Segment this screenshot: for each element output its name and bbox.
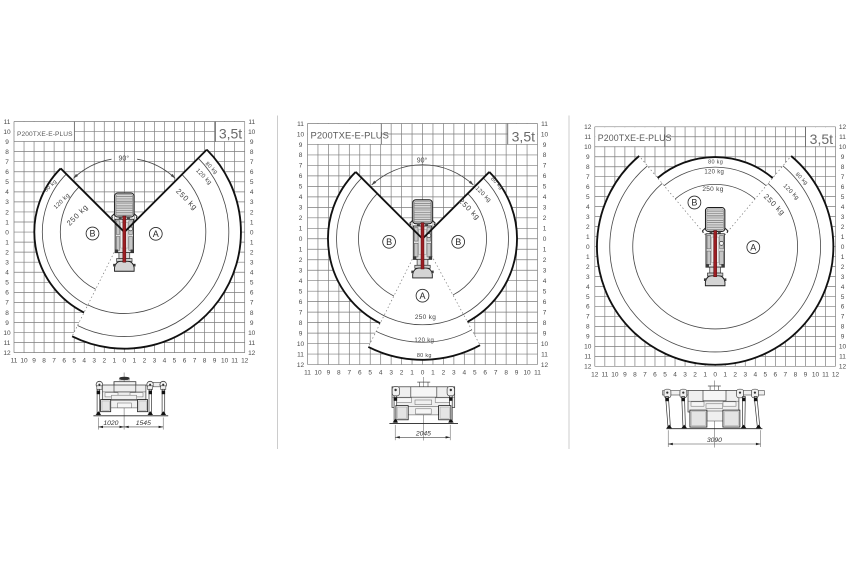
svg-text:10: 10: [248, 330, 256, 337]
svg-text:90°: 90°: [119, 154, 130, 162]
svg-text:11: 11: [541, 351, 548, 358]
svg-text:3: 3: [683, 371, 687, 378]
svg-text:2: 2: [543, 257, 547, 264]
svg-text:10: 10: [541, 131, 549, 138]
svg-text:2: 2: [299, 215, 303, 222]
svg-text:7: 7: [250, 300, 254, 307]
svg-text:4: 4: [841, 204, 845, 211]
svg-text:3: 3: [5, 199, 9, 206]
svg-text:10: 10: [20, 358, 28, 365]
svg-text:12: 12: [839, 364, 847, 371]
svg-text:9: 9: [841, 154, 845, 161]
svg-text:11: 11: [541, 121, 548, 128]
svg-text:1: 1: [299, 247, 303, 254]
svg-text:B: B: [386, 237, 392, 247]
svg-text:8: 8: [250, 149, 254, 156]
svg-text:4: 4: [163, 358, 167, 365]
svg-text:2: 2: [841, 264, 845, 271]
svg-text:3: 3: [250, 260, 254, 267]
svg-text:7: 7: [784, 371, 788, 378]
svg-text:6: 6: [543, 299, 547, 306]
svg-text:10: 10: [812, 371, 820, 378]
svg-text:7: 7: [841, 174, 845, 181]
svg-text:9: 9: [5, 139, 9, 146]
svg-text:5: 5: [841, 194, 845, 201]
svg-text:2: 2: [250, 209, 254, 216]
svg-text:3: 3: [543, 268, 547, 275]
svg-text:10: 10: [611, 371, 619, 378]
svg-text:1: 1: [723, 371, 727, 378]
svg-text:1: 1: [410, 370, 414, 377]
svg-text:3: 3: [841, 274, 845, 281]
svg-text:11: 11: [248, 119, 255, 126]
svg-text:1: 1: [586, 234, 590, 241]
svg-text:7: 7: [643, 371, 647, 378]
svg-text:11: 11: [297, 351, 304, 358]
svg-text:3: 3: [543, 205, 547, 212]
svg-text:2: 2: [250, 249, 254, 256]
svg-text:3: 3: [841, 214, 845, 221]
svg-text:2: 2: [400, 370, 404, 377]
svg-text:11: 11: [534, 370, 541, 377]
svg-text:8: 8: [794, 371, 798, 378]
svg-text:8: 8: [203, 358, 207, 365]
svg-text:2: 2: [143, 358, 147, 365]
svg-text:9: 9: [250, 320, 254, 327]
svg-text:P200TXE-E-PLUS: P200TXE-E-PLUS: [17, 131, 73, 138]
svg-text:2: 2: [102, 358, 106, 365]
svg-text:9: 9: [804, 371, 808, 378]
svg-text:5: 5: [473, 370, 477, 377]
svg-text:8: 8: [586, 164, 590, 171]
svg-text:5: 5: [5, 179, 9, 186]
svg-text:10: 10: [3, 129, 11, 136]
svg-text:0: 0: [250, 229, 254, 236]
svg-text:7: 7: [348, 370, 352, 377]
svg-text:3: 3: [299, 268, 303, 275]
svg-text:6: 6: [586, 184, 590, 191]
svg-text:12: 12: [591, 371, 599, 378]
svg-text:4: 4: [5, 270, 9, 277]
svg-text:3: 3: [153, 358, 157, 365]
svg-text:1: 1: [5, 219, 9, 226]
svg-text:4: 4: [753, 371, 757, 378]
svg-text:8: 8: [250, 310, 254, 317]
svg-text:8: 8: [337, 370, 341, 377]
svg-text:P200TXE-E-PLUS: P200TXE-E-PLUS: [598, 133, 672, 143]
svg-text:11: 11: [297, 121, 304, 128]
svg-text:5: 5: [543, 288, 547, 295]
svg-text:12: 12: [241, 358, 249, 365]
svg-text:4: 4: [250, 189, 254, 196]
svg-text:12: 12: [541, 362, 549, 369]
svg-text:11: 11: [584, 354, 591, 361]
svg-text:10: 10: [221, 358, 229, 365]
svg-text:3: 3: [743, 371, 747, 378]
svg-text:5: 5: [663, 371, 667, 378]
svg-text:12: 12: [3, 350, 11, 357]
svg-text:12: 12: [248, 350, 256, 357]
svg-text:6: 6: [250, 290, 254, 297]
svg-text:7: 7: [193, 358, 197, 365]
svg-text:0: 0: [841, 244, 845, 251]
svg-text:8: 8: [5, 149, 9, 156]
svg-text:6: 6: [543, 173, 547, 180]
svg-text:10: 10: [584, 144, 592, 151]
svg-text:80 kg: 80 kg: [708, 159, 723, 165]
svg-text:6: 6: [841, 184, 845, 191]
svg-text:4: 4: [543, 278, 547, 285]
svg-text:10: 10: [3, 330, 11, 337]
svg-text:8: 8: [299, 320, 303, 327]
svg-text:2: 2: [5, 249, 9, 256]
svg-text:2: 2: [841, 224, 845, 231]
svg-text:6: 6: [299, 299, 303, 306]
svg-text:4: 4: [82, 358, 86, 365]
svg-text:2: 2: [693, 371, 697, 378]
svg-text:7: 7: [586, 174, 590, 181]
svg-text:3: 3: [586, 274, 590, 281]
svg-text:2: 2: [543, 215, 547, 222]
svg-text:4: 4: [379, 370, 383, 377]
svg-text:9: 9: [543, 142, 547, 149]
svg-text:80 kg: 80 kg: [417, 353, 432, 359]
svg-text:11: 11: [4, 340, 11, 347]
svg-text:250 kg: 250 kg: [415, 314, 436, 321]
svg-text:5: 5: [543, 184, 547, 191]
svg-text:1: 1: [586, 254, 590, 261]
svg-text:0: 0: [5, 229, 9, 236]
svg-text:11: 11: [231, 358, 238, 365]
svg-text:12: 12: [297, 362, 305, 369]
svg-text:11: 11: [4, 119, 11, 126]
svg-text:6: 6: [62, 358, 66, 365]
svg-text:8: 8: [299, 152, 303, 159]
svg-text:B: B: [455, 237, 461, 247]
svg-text:9: 9: [841, 334, 845, 341]
svg-text:9: 9: [299, 142, 303, 149]
svg-text:8: 8: [42, 358, 46, 365]
svg-text:6: 6: [483, 370, 487, 377]
svg-text:7: 7: [5, 300, 9, 307]
svg-text:12: 12: [839, 124, 847, 131]
svg-text:4: 4: [5, 189, 9, 196]
svg-text:3: 3: [389, 370, 393, 377]
svg-text:0: 0: [421, 370, 425, 377]
svg-text:10: 10: [523, 370, 531, 377]
svg-text:2: 2: [586, 224, 590, 231]
svg-text:7: 7: [494, 370, 498, 377]
svg-text:5: 5: [299, 184, 303, 191]
svg-text:4: 4: [299, 278, 303, 285]
svg-text:8: 8: [543, 320, 547, 327]
svg-text:9: 9: [213, 358, 217, 365]
svg-text:A: A: [750, 242, 756, 252]
svg-text:2: 2: [733, 371, 737, 378]
svg-text:1: 1: [112, 358, 116, 365]
svg-text:11: 11: [822, 371, 829, 378]
svg-text:1: 1: [703, 371, 707, 378]
svg-text:8: 8: [841, 324, 845, 331]
svg-text:3: 3: [452, 370, 456, 377]
svg-text:5: 5: [250, 280, 254, 287]
svg-text:B: B: [691, 198, 697, 208]
svg-text:6: 6: [653, 371, 657, 378]
svg-text:7: 7: [299, 309, 303, 316]
svg-text:6: 6: [358, 370, 362, 377]
svg-text:5: 5: [299, 288, 303, 295]
svg-text:1: 1: [543, 226, 547, 233]
svg-text:3: 3: [250, 199, 254, 206]
svg-text:10: 10: [297, 341, 305, 348]
svg-text:10: 10: [297, 131, 305, 138]
svg-text:9: 9: [5, 320, 9, 327]
svg-text:9: 9: [327, 370, 331, 377]
svg-text:B: B: [89, 229, 95, 239]
svg-text:1: 1: [250, 219, 254, 226]
svg-text:11: 11: [304, 370, 311, 377]
svg-text:A: A: [419, 291, 425, 301]
svg-text:4: 4: [543, 194, 547, 201]
svg-text:6: 6: [250, 169, 254, 176]
svg-text:7: 7: [299, 163, 303, 170]
svg-text:6: 6: [774, 371, 778, 378]
svg-text:8: 8: [633, 371, 637, 378]
svg-text:4: 4: [586, 204, 590, 211]
svg-text:P200TXE-E-PLUS: P200TXE-E-PLUS: [311, 130, 390, 141]
svg-text:5: 5: [250, 179, 254, 186]
svg-text:8: 8: [841, 164, 845, 171]
svg-text:0: 0: [299, 236, 303, 243]
svg-text:10: 10: [541, 341, 549, 348]
svg-text:12: 12: [584, 124, 592, 131]
svg-text:9: 9: [299, 330, 303, 337]
svg-text:0: 0: [713, 371, 717, 378]
svg-text:5: 5: [763, 371, 767, 378]
svg-text:5: 5: [586, 194, 590, 201]
svg-text:9: 9: [543, 330, 547, 337]
svg-text:12: 12: [832, 371, 840, 378]
svg-text:6: 6: [5, 290, 9, 297]
svg-text:5: 5: [368, 370, 372, 377]
svg-text:3,5t: 3,5t: [810, 131, 833, 147]
svg-text:3: 3: [299, 205, 303, 212]
svg-text:10: 10: [314, 370, 322, 377]
svg-text:5: 5: [5, 280, 9, 287]
svg-text:2: 2: [442, 370, 446, 377]
svg-text:4: 4: [586, 284, 590, 291]
svg-text:2: 2: [299, 257, 303, 264]
svg-text:120 kg: 120 kg: [704, 169, 724, 175]
svg-text:4: 4: [299, 194, 303, 201]
svg-text:7: 7: [5, 159, 9, 166]
svg-text:7: 7: [52, 358, 56, 365]
svg-text:6: 6: [841, 304, 845, 311]
svg-text:7: 7: [841, 314, 845, 321]
svg-text:A: A: [153, 229, 159, 239]
svg-text:3,5t: 3,5t: [219, 126, 242, 142]
svg-text:1: 1: [250, 239, 254, 246]
svg-text:11: 11: [248, 340, 255, 347]
svg-text:7: 7: [543, 309, 547, 316]
svg-text:1: 1: [5, 239, 9, 246]
svg-text:2045: 2045: [415, 430, 431, 437]
svg-text:250 kg: 250 kg: [702, 186, 723, 193]
svg-text:1: 1: [841, 254, 845, 261]
svg-text:11: 11: [11, 358, 18, 365]
svg-text:1020: 1020: [103, 420, 118, 427]
svg-text:8: 8: [504, 370, 508, 377]
svg-text:3: 3: [586, 214, 590, 221]
svg-text:6: 6: [299, 173, 303, 180]
svg-text:9: 9: [623, 371, 627, 378]
svg-text:8: 8: [543, 152, 547, 159]
svg-text:1: 1: [543, 247, 547, 254]
svg-text:8: 8: [5, 310, 9, 317]
svg-text:0: 0: [543, 236, 547, 243]
svg-text:4: 4: [841, 284, 845, 291]
svg-text:4: 4: [250, 270, 254, 277]
svg-text:3: 3: [5, 260, 9, 267]
svg-text:3: 3: [92, 358, 96, 365]
svg-text:6: 6: [183, 358, 187, 365]
svg-text:0: 0: [586, 244, 590, 251]
svg-text:4: 4: [463, 370, 467, 377]
svg-text:2: 2: [5, 209, 9, 216]
svg-text:1: 1: [841, 234, 845, 241]
svg-text:1: 1: [431, 370, 435, 377]
svg-text:11: 11: [601, 371, 608, 378]
svg-text:9: 9: [586, 334, 590, 341]
svg-text:4: 4: [673, 371, 677, 378]
svg-text:9: 9: [32, 358, 36, 365]
svg-text:11: 11: [839, 354, 846, 361]
svg-text:5: 5: [72, 358, 76, 365]
svg-text:0: 0: [123, 358, 127, 365]
svg-text:120 kg: 120 kg: [414, 338, 434, 344]
svg-text:11: 11: [584, 134, 591, 141]
svg-text:6: 6: [5, 169, 9, 176]
svg-text:9: 9: [250, 139, 254, 146]
svg-text:90°: 90°: [417, 156, 428, 164]
svg-text:7: 7: [543, 163, 547, 170]
svg-text:10: 10: [248, 129, 256, 136]
svg-text:10: 10: [584, 344, 592, 351]
svg-text:1: 1: [299, 226, 303, 233]
svg-text:11: 11: [839, 134, 846, 141]
svg-text:1: 1: [133, 358, 137, 365]
svg-text:5: 5: [586, 294, 590, 301]
svg-text:7: 7: [250, 159, 254, 166]
svg-text:5: 5: [173, 358, 177, 365]
svg-text:5: 5: [841, 294, 845, 301]
svg-text:10: 10: [839, 344, 847, 351]
svg-text:7: 7: [586, 314, 590, 321]
svg-text:1545: 1545: [136, 420, 151, 427]
svg-text:12: 12: [584, 364, 592, 371]
svg-text:3,5t: 3,5t: [512, 128, 535, 144]
svg-text:9: 9: [586, 154, 590, 161]
svg-text:9: 9: [515, 370, 519, 377]
svg-text:10: 10: [839, 144, 847, 151]
svg-text:2: 2: [586, 264, 590, 271]
svg-text:6: 6: [586, 304, 590, 311]
svg-text:3090: 3090: [707, 437, 722, 444]
svg-text:8: 8: [586, 324, 590, 331]
